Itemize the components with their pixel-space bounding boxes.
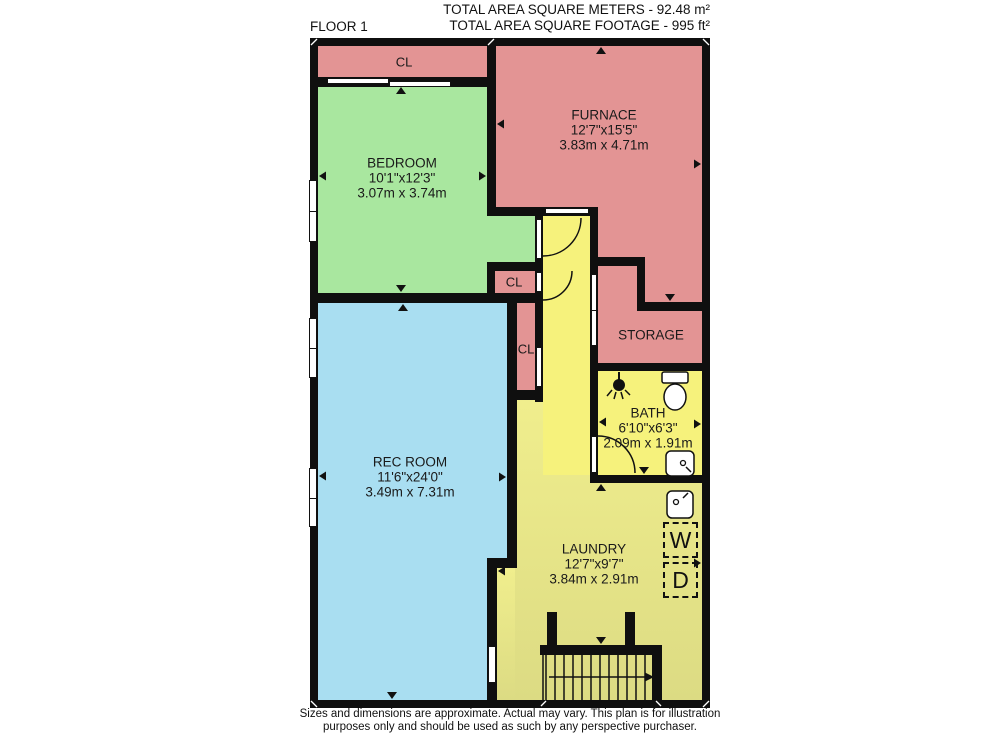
closet-lower-label: CL [518, 342, 535, 357]
plan-symbols [0, 0, 1000, 735]
door-arc-closet-mid [543, 271, 572, 300]
furnace-dims-ft: 12'7"x15'5" [559, 123, 648, 138]
dryer-box: D [663, 562, 698, 598]
laundry-dims-m: 3.84m x 2.91m [549, 572, 638, 587]
bath-dims-m: 2.09m x 1.91m [603, 436, 692, 451]
washer-label: W [670, 527, 692, 554]
laundry-dims-ft: 12'7"x9'7" [549, 557, 638, 572]
rec-room-dims-m: 3.49m x 7.31m [365, 485, 454, 500]
storage-name: STORAGE [618, 328, 684, 343]
rec-room-label: REC ROOM 11'6"x24'0" 3.49m x 7.31m [365, 455, 454, 500]
furnace-name: FURNACE [559, 108, 648, 123]
laundry-name: LAUNDRY [549, 542, 638, 557]
bath-dims-ft: 6'10"x6'3" [603, 421, 692, 436]
floor-plan: TOTAL AREA SQUARE METERS - 92.48 m² TOTA… [0, 0, 1000, 735]
laundry-label: LAUNDRY 12'7"x9'7" 3.84m x 2.91m [549, 542, 638, 587]
furnace-label: FURNACE 12'7"x15'5" 3.83m x 4.71m [559, 108, 648, 153]
dryer-label: D [672, 567, 689, 594]
bedroom-label: BEDROOM 10'1"x12'3" 3.07m x 3.74m [357, 156, 446, 201]
bath-name: BATH [603, 406, 692, 421]
rec-room-dims-ft: 11'6"x24'0" [365, 470, 454, 485]
bedroom-name: BEDROOM [357, 156, 446, 171]
bath-label: BATH 6'10"x6'3" 2.09m x 1.91m [603, 406, 692, 451]
bedroom-dims-ft: 10'1"x12'3" [357, 171, 446, 186]
rec-room-name: REC ROOM [365, 455, 454, 470]
washer-box: W [663, 522, 698, 558]
closet-mid-label: CL [506, 275, 523, 290]
furnace-dims-m: 3.83m x 4.71m [559, 138, 648, 153]
toilet-icon [662, 372, 688, 410]
corner-miters [311, 39, 709, 707]
laundry-sink-icon [667, 491, 693, 518]
shower-icon [607, 372, 630, 399]
bath-sink-icon [666, 451, 694, 476]
bedroom-dims-m: 3.07m x 3.74m [357, 186, 446, 201]
door-arc-bedroom [543, 218, 581, 256]
storage-label: STORAGE [618, 328, 684, 343]
closet-top-label: CL [396, 55, 413, 70]
